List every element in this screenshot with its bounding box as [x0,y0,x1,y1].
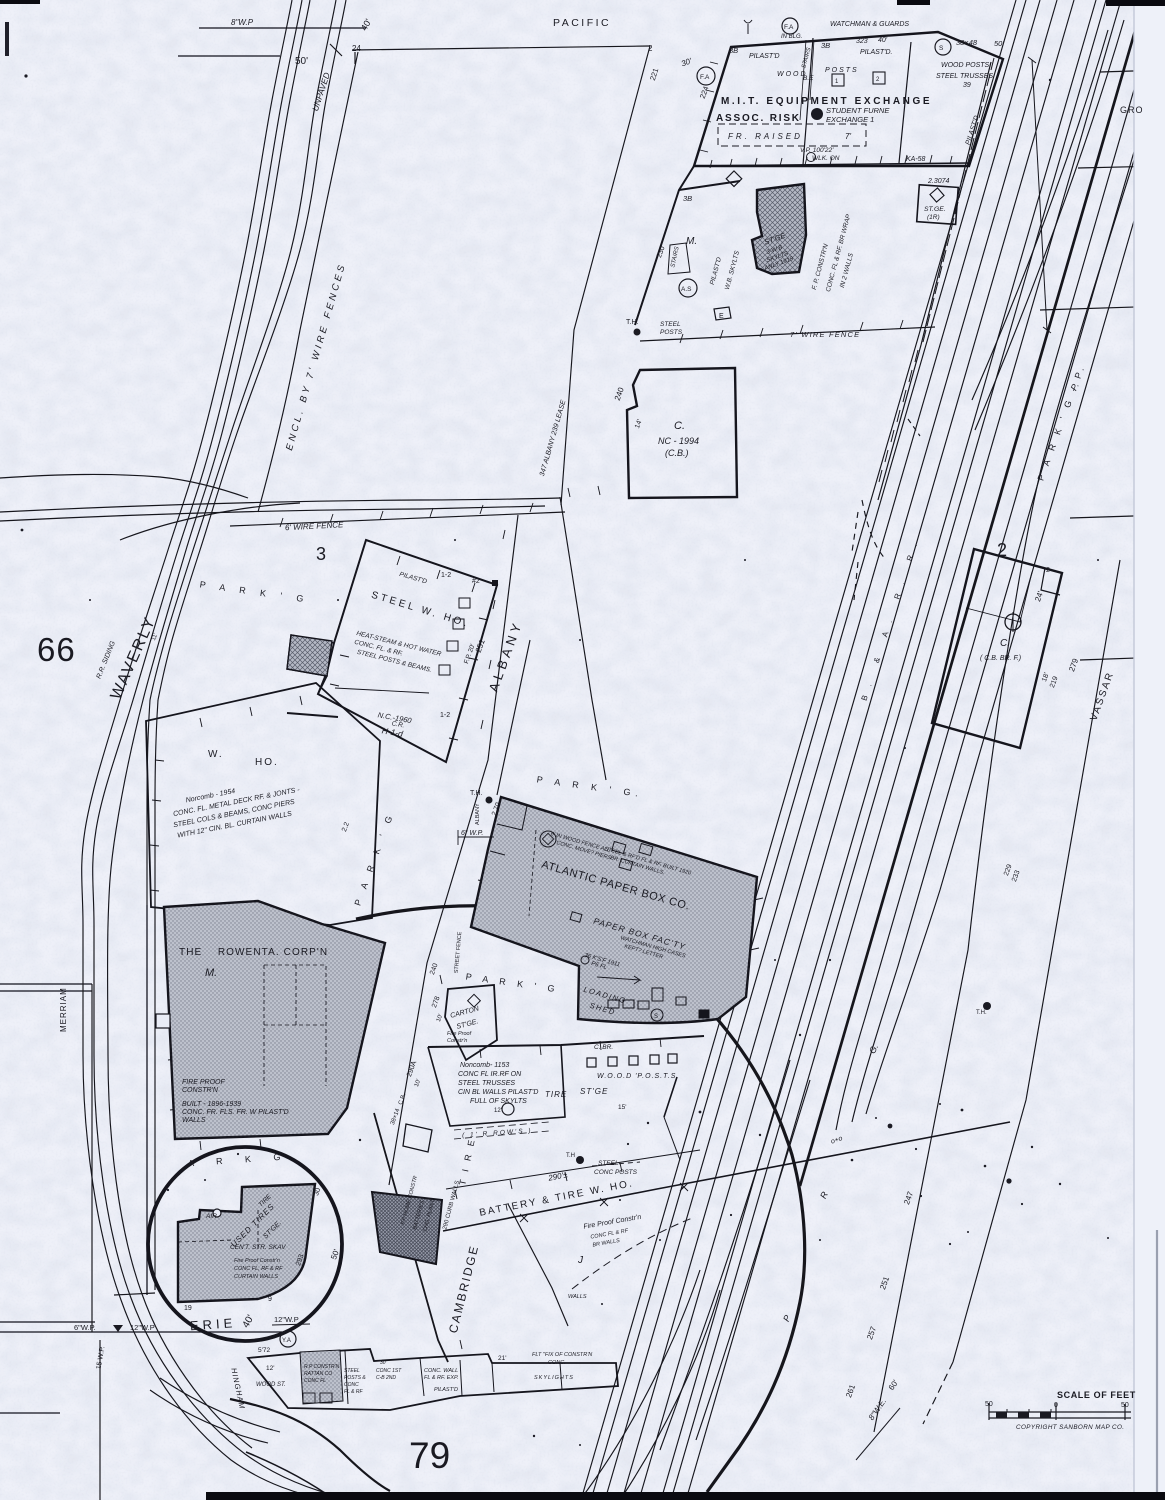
svg-text:40': 40' [878,37,888,44]
svg-text:CURTAIN WALLS: CURTAIN WALLS [234,1274,278,1280]
svg-text:CONC 1ST: CONC 1ST [376,1368,402,1374]
svg-text:50': 50' [994,39,1004,48]
svg-text:19: 19 [184,1305,192,1312]
svg-text:M.: M. [686,236,697,247]
svg-text:2: 2 [648,44,653,53]
svg-text:79: 79 [409,1435,450,1476]
svg-text:Noncomb- 1153: Noncomb- 1153 [460,1062,509,1069]
svg-text:W.: W. [208,749,224,760]
svg-text:A4: A4 [813,113,820,119]
svg-text:12': 12' [494,1108,502,1114]
svg-text:BUILT - 1896-1939: BUILT - 1896-1939 [182,1101,241,1108]
svg-text:Y.A: Y.A [282,1338,291,1344]
svg-text:CONC FL, RF & RF: CONC FL, RF & RF [234,1266,283,1272]
svg-text:STEEL: STEEL [660,321,681,328]
svg-text:WATCHMAN & GUARDS: WATCHMAN & GUARDS [830,21,909,28]
svg-text:24: 24 [352,44,361,53]
svg-text:POSTS &: POSTS & [344,1375,366,1381]
svg-text:CONC POSTS: CONC POSTS [594,1169,638,1176]
svg-text:66: 66 [37,631,76,668]
svg-text:T.H.: T.H. [976,1010,987,1016]
svg-text:PILAST'D: PILAST'D [749,53,780,60]
svg-text:21': 21' [498,1355,506,1362]
svg-text:THE ROWENTA. CORP'N: THE ROWENTA. CORP'N [179,947,328,958]
svg-text:POSTS: POSTS [825,67,859,74]
svg-text:3: 3 [316,544,326,564]
svg-text:2: 2 [997,540,1007,560]
svg-text:S: S [939,45,944,52]
svg-text:M.: M. [205,967,217,979]
svg-text:STEEL TRUSSES: STEEL TRUSSES [458,1080,515,1087]
svg-text:W.O.O.D 'P.O.S.T.S: W.O.O.D 'P.O.S.T.S [597,1073,676,1080]
svg-text:39: 39 [963,82,971,89]
svg-text:1-2: 1-2 [440,712,450,719]
svg-text:FL & RF: FL & RF [344,1389,363,1395]
svg-text:B.E: B.E [803,75,814,82]
svg-text:PACIFIC: PACIFIC [553,17,611,29]
svg-text:MERRIAM: MERRIAM [59,987,68,1032]
svg-text:12"W.P: 12"W.P [274,1315,299,1324]
svg-text:15': 15' [618,1104,626,1111]
svg-text:STUDENT FURNE: STUDENT FURNE [826,106,890,115]
svg-text:Constr'n: Constr'n [447,1038,467,1044]
svg-text:STEEL TRUSSES: STEEL TRUSSES [936,73,993,80]
svg-text:NC - 1994: NC - 1994 [658,436,699,446]
svg-text:WOOD ST.: WOOD ST. [256,1382,286,1388]
svg-text:POSTS: POSTS [660,329,683,336]
svg-text:38×48: 38×48 [956,38,978,47]
svg-text:CONC. FR. FLS. FR. W PILAST'D: CONC. FR. FLS. FR. W PILAST'D [182,1109,289,1116]
svg-text:1-2: 1-2 [441,572,451,579]
svg-text:3B: 3B [683,194,692,203]
svg-text:PILAST'D.: PILAST'D. [860,49,893,56]
svg-text:SKYLIGHTS: SKYLIGHTS [534,1375,574,1381]
svg-text:#2: #2 [472,578,480,585]
svg-text:S: S [654,1014,658,1020]
svg-text:8"W.P: 8"W.P [231,18,254,27]
svg-text:EXCHANGE 1: EXCHANGE 1 [826,115,874,124]
svg-text:2.3074: 2.3074 [927,178,950,185]
svg-text:T.H.: T.H. [626,319,639,326]
svg-text:C.: C. [674,420,685,432]
svg-text:C.: C. [1000,638,1010,649]
svg-text:(1R): (1R) [927,214,940,221]
svg-text:CIN BL WALLS PILAST'D: CIN BL WALLS PILAST'D [458,1089,538,1096]
svg-text:3B: 3B [729,46,738,55]
svg-text:WLK. ON: WLK. ON [812,155,840,162]
svg-text:SCALE OF FEET: SCALE OF FEET [1057,1390,1136,1400]
svg-text:CONC: CONC [344,1382,359,1388]
svg-text:6" W.P.: 6" W.P. [461,830,483,837]
svg-text:F.A: F.A [784,24,794,31]
svg-text:2: 2 [1046,567,1050,574]
svg-text:T.H.: T.H. [470,790,483,797]
svg-text:12"W.P: 12"W.P [130,1323,155,1332]
svg-text:3B: 3B [821,41,830,50]
svg-text:CONC FL: CONC FL [304,1378,326,1384]
svg-text:IN BLG.: IN BLG. [781,34,802,40]
svg-text:COPYRIGHT SANBORN MAP CO.: COPYRIGHT SANBORN MAP CO. [1016,1424,1124,1431]
svg-text:T.H: T.H [566,1153,575,1159]
svg-text:PILAST'D: PILAST'D [434,1387,458,1393]
svg-text:J: J [577,1255,584,1266]
svg-text:FL & RF. EXP.: FL & RF. EXP. [424,1375,459,1381]
svg-text:STEEL: STEEL [344,1368,360,1374]
svg-text:A.S: A.S [681,286,692,293]
svg-text:FLT "FIX OF CONSTR'N: FLT "FIX OF CONSTR'N [532,1352,592,1358]
svg-text:TIRE: TIRE [545,1090,567,1099]
svg-text:E: E [719,313,724,320]
svg-text:FR. RAISED: FR. RAISED [728,132,803,141]
svg-text:6"W.P.: 6"W.P. [74,1323,96,1332]
svg-text:CONC.: CONC. [548,1360,566,1366]
svg-text:GRO: GRO [1120,105,1144,115]
svg-text:CONSTR'N: CONSTR'N [182,1087,219,1094]
svg-text:ST'GE: ST'GE [580,1087,608,1096]
svg-text:FIRE PROOF: FIRE PROOF [182,1079,226,1086]
svg-text:CONC FL IR.RF ON: CONC FL IR.RF ON [458,1071,522,1078]
svg-text:5'72: 5'72 [258,1347,270,1354]
svg-text:Fire Proof Constr'n: Fire Proof Constr'n [234,1258,280,1264]
svg-text:WALLS: WALLS [568,1294,587,1300]
svg-text:R.P CONSTR'N: R.P CONSTR'N [304,1364,340,1370]
svg-text:7' WIRE FENCE: 7' WIRE FENCE [790,330,860,339]
svg-text:F.A: F.A [700,74,710,81]
svg-text:9: 9 [268,1296,272,1303]
svg-text:(C.B.): (C.B.) [665,448,689,458]
svg-text:30': 30' [380,1360,388,1366]
svg-text:V.P. 100'22': V.P. 100'22' [800,147,834,154]
svg-text:STEEL: STEEL [598,1160,619,1167]
svg-text:C. BR.: C. BR. [594,1044,613,1051]
svg-text:Fire Proof: Fire Proof [447,1031,472,1037]
svg-text:RATTAN CO: RATTAN CO [304,1371,332,1377]
svg-text:50': 50' [295,56,308,67]
svg-text:FULL OF SKYLTS: FULL OF SKYLTS [470,1098,527,1105]
svg-text:323: 323 [856,38,868,45]
svg-text:7': 7' [845,132,851,141]
svg-text:CEN'T. STR. SKAV: CEN'T. STR. SKAV [230,1244,286,1251]
svg-text:WOOD POSTS: WOOD POSTS [941,62,990,69]
svg-text:ALBANY: ALBANY [475,803,481,825]
svg-text:WALLS: WALLS [182,1117,206,1124]
svg-text:12': 12' [266,1365,274,1372]
svg-text:CONC. WALL: CONC. WALL [424,1368,458,1374]
svg-text:ASSOC. RISK: ASSOC. RISK [716,113,801,124]
svg-text:AIR: AIR [205,1213,217,1220]
svg-text:C-B 2ND: C-B 2ND [376,1375,396,1381]
svg-text:ST.GE.: ST.GE. [924,206,946,213]
svg-text:KA-58: KA-58 [906,156,926,163]
svg-text:( C.B. BR. F.): ( C.B. BR. F.) [980,655,1021,662]
svg-text:HO.: HO. [255,757,279,768]
